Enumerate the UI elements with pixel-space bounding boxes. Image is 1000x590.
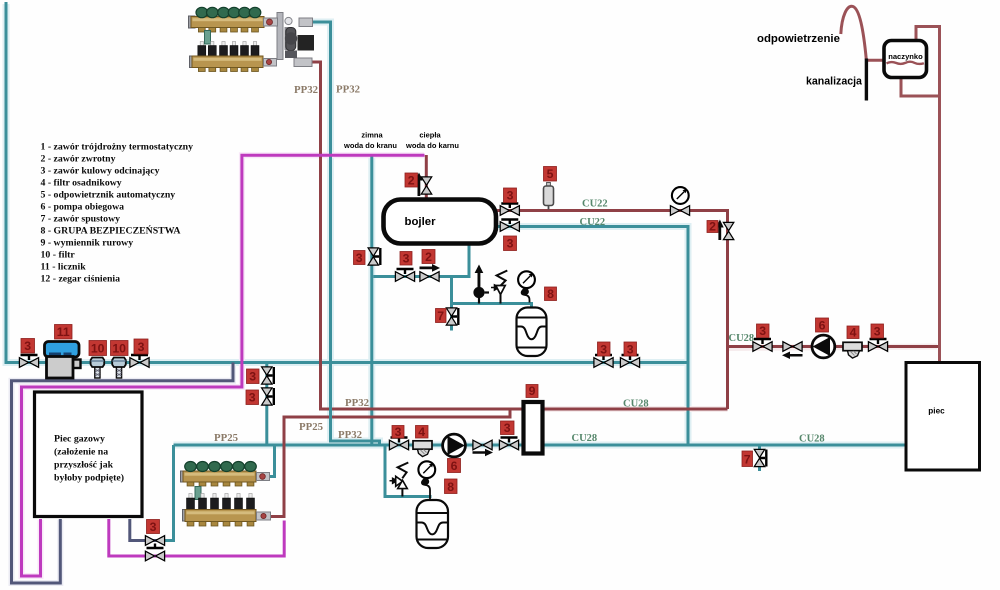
svg-text:5 - odpowietrznik automatyczny: 5 - odpowietrznik automatyczny [41,190,176,201]
svg-text:4: 4 [418,425,425,439]
svg-text:3: 3 [403,252,410,266]
svg-text:naczynko: naczynko [888,52,923,61]
svg-text:zimna: zimna [361,131,383,140]
svg-text:3: 3 [504,421,511,435]
svg-text:7: 7 [744,453,751,467]
svg-text:bojler: bojler [404,216,436,228]
svg-text:3: 3 [249,391,256,405]
svg-text:3: 3 [874,325,881,339]
svg-text:3: 3 [507,189,514,203]
svg-text:12 - zegar ciśnienia: 12 - zegar ciśnienia [41,274,121,285]
svg-text:CU28: CU28 [572,433,598,444]
svg-text:CU22: CU22 [580,217,606,228]
svg-text:PP32: PP32 [338,429,362,441]
svg-text:8: 8 [447,480,454,494]
svg-text:10: 10 [112,342,126,356]
svg-text:piec: piec [928,407,945,416]
svg-text:6 - pompa obiegowa: 6 - pompa obiegowa [41,202,125,213]
svg-text:6: 6 [451,459,458,473]
svg-text:7 - zawór spustowy: 7 - zawór spustowy [41,214,121,225]
svg-text:CU28: CU28 [799,434,825,445]
svg-text:PP25: PP25 [214,432,238,444]
svg-text:3: 3 [507,237,514,251]
svg-text:2 - zawór zwrotny: 2 - zawór zwrotny [41,154,116,165]
svg-text:PP32: PP32 [345,397,369,409]
svg-text:8: 8 [547,287,554,301]
svg-text:9 - wymiennik rurowy: 9 - wymiennik rurowy [41,238,134,249]
svg-text:(założenie na: (założenie na [54,447,108,458]
svg-text:3: 3 [138,340,145,354]
svg-text:2: 2 [425,250,432,264]
svg-text:4: 4 [850,326,857,340]
svg-text:CU28: CU28 [729,333,755,344]
svg-text:CU22: CU22 [582,199,608,210]
svg-text:3: 3 [24,339,31,353]
svg-text:2: 2 [709,220,716,234]
svg-text:11 - licznik: 11 - licznik [41,262,87,273]
svg-text:5: 5 [547,167,554,181]
svg-text:PP25: PP25 [299,421,323,433]
svg-text:woda do kranu: woda do kranu [343,141,397,150]
svg-text:ciepła: ciepła [419,131,441,140]
svg-text:PP32: PP32 [294,84,318,96]
svg-text:3 - zawór kulowy odcinający: 3 - zawór kulowy odcinający [41,166,160,177]
svg-text:3: 3 [600,343,607,357]
svg-text:Piec gazowy: Piec gazowy [54,434,105,445]
svg-text:1 - zawór trójdrożny termostat: 1 - zawór trójdrożny termostatyczny [41,142,194,153]
svg-text:10: 10 [91,342,105,356]
svg-text:CU28: CU28 [623,399,649,410]
svg-text:3: 3 [249,370,256,384]
svg-text:7: 7 [437,309,444,323]
svg-text:11: 11 [57,325,70,339]
svg-text:3: 3 [627,343,634,357]
svg-text:8 - GRUPA BEZPIECZEŃSTWA: 8 - GRUPA BEZPIECZEŃSTWA [41,225,181,237]
svg-text:10 - filtr: 10 - filtr [41,250,76,261]
svg-text:2: 2 [408,174,415,188]
svg-text:woda do karnu: woda do karnu [405,141,459,150]
svg-text:kanalizacja: kanalizacja [806,76,862,88]
svg-text:3: 3 [395,425,402,439]
svg-text:9: 9 [529,384,536,398]
svg-text:3: 3 [150,520,157,534]
svg-text:3: 3 [356,251,363,265]
svg-text:4 - filtr osadnikowy: 4 - filtr osadnikowy [41,178,122,189]
svg-text:przyszłość jak: przyszłość jak [54,460,114,471]
svg-text:odpowietrzenie: odpowietrzenie [757,33,840,45]
svg-text:byłoby podpięte): byłoby podpięte) [54,473,124,484]
svg-text:3: 3 [759,324,766,338]
svg-text:PP32: PP32 [336,84,360,96]
svg-text:6: 6 [819,319,826,333]
